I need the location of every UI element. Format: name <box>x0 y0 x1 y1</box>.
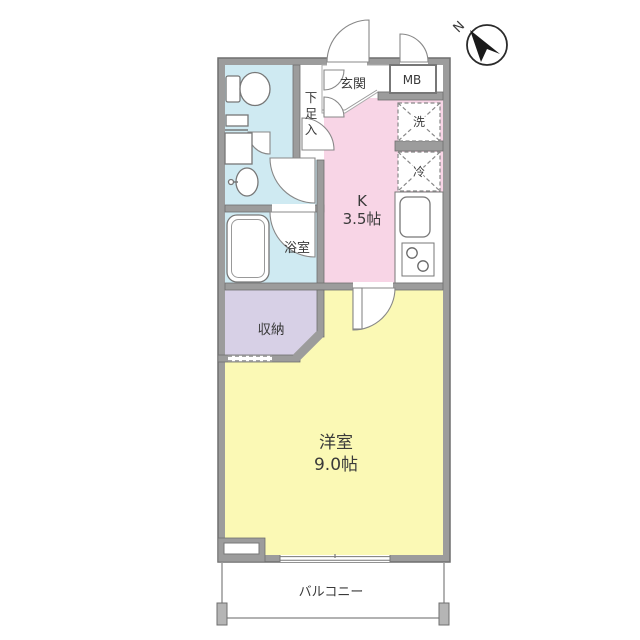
washbasin-icon <box>236 168 258 196</box>
stove-burner-icon-2 <box>418 261 428 271</box>
bathtub-icon <box>227 215 269 282</box>
kitchen-sink-icon <box>400 197 430 237</box>
floor-plan: N 玄関 MB 下 足 入 洗 冷 K 3.5帖 浴室 収納 洋室 9.0帖 バ… <box>0 0 640 640</box>
label-washer: 洗 <box>413 115 425 129</box>
label-shoe-cabinet-char-2: 足 <box>305 106 318 121</box>
toilet-bowl-icon <box>240 73 270 106</box>
mb-door-arc <box>400 34 428 62</box>
compass: N <box>451 19 507 65</box>
label-storage: 収納 <box>258 322 285 338</box>
wall-kitchen-left <box>317 160 324 290</box>
wall-storage-right <box>317 290 324 337</box>
balcony-post-right <box>439 603 449 625</box>
label-kitchen-name: K <box>357 192 368 210</box>
wall-washer-fridge <box>395 141 443 151</box>
balcony-post-left <box>217 603 227 625</box>
gap-bathroom-door <box>272 204 315 213</box>
label-shoe-cabinet-char-3: 入 <box>305 122 318 137</box>
toilet-shelf-icon <box>226 115 248 126</box>
label-western-room-name: 洋室 <box>319 433 353 453</box>
kitchen-room-door-leaf <box>353 288 362 329</box>
toilet-tank-icon <box>226 76 240 102</box>
washbasin-knob-icon <box>229 180 234 185</box>
label-kitchen-size: 3.5帖 <box>343 210 382 228</box>
wall-room-top <box>225 283 443 290</box>
floor-plan-svg: N 玄関 MB 下 足 入 洗 冷 K 3.5帖 浴室 収納 洋室 9.0帖 バ… <box>0 0 640 640</box>
wall-closet-left <box>293 65 300 160</box>
stove-icon <box>402 243 434 276</box>
label-bathroom: 浴室 <box>284 240 310 256</box>
corner-window <box>224 543 259 554</box>
label-entrance: 玄関 <box>340 77 366 92</box>
label-shoe-cabinet-char-1: 下 <box>305 90 318 105</box>
label-balcony: バルコニー <box>299 585 364 600</box>
compass-north-label: N <box>451 19 468 36</box>
label-western-room-size: 9.0帖 <box>314 455 358 475</box>
stove-burner-icon-1 <box>407 248 417 258</box>
label-meter-box: MB <box>403 73 422 87</box>
entrance-door-arc <box>327 20 369 62</box>
vanity-cabinet-icon <box>225 133 252 164</box>
label-refrigerator: 冷 <box>413 165 425 179</box>
